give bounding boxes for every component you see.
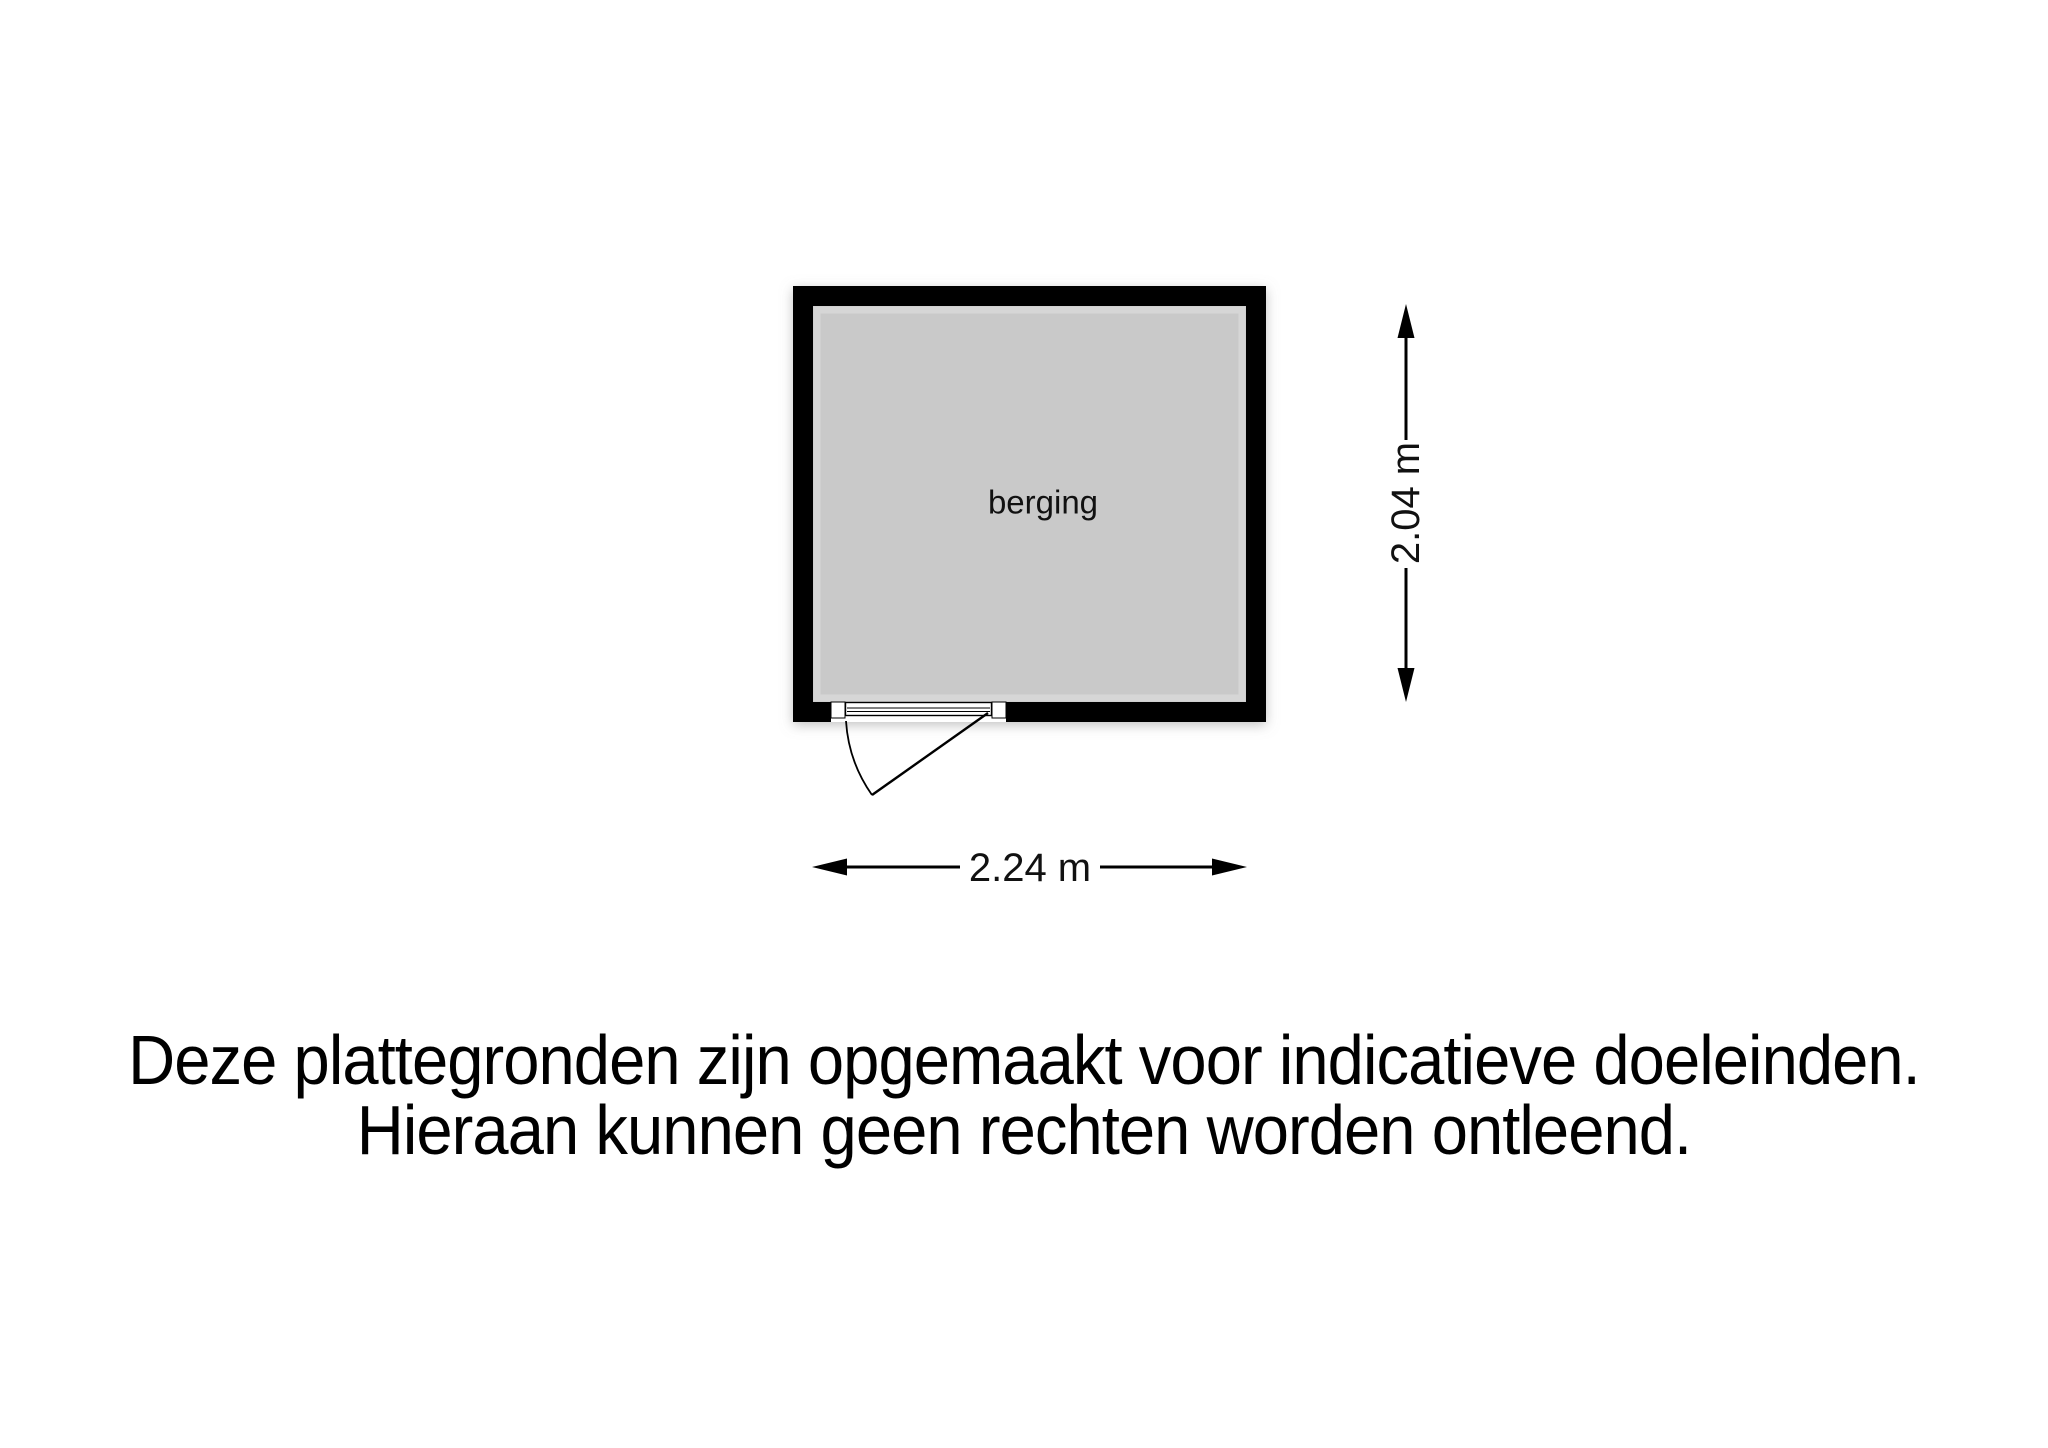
door-jamb-left [831,702,845,718]
room-label: berging [988,484,1098,521]
wall-left [793,286,813,722]
arrow-left-icon [812,859,847,876]
disclaimer-line-2: Hieraan kunnen geen rechten worden ontle… [72,1095,1977,1165]
arrow-right-icon [1212,859,1247,876]
width-dimension-label: 2.24 m [969,846,1091,890]
door-swing-arc [846,721,872,795]
door-leaf-open [872,713,988,795]
width-dimension: 2.24 m [812,846,1247,890]
arrow-down-icon [1398,668,1415,702]
wall-bottom-right-stub [1006,702,1266,722]
height-dimension: 2.04 m [1384,304,1428,702]
height-dimension-label: 2.04 m [1384,442,1428,564]
disclaimer: Deze plattegronden zijn opgemaakt voor i… [72,1025,1977,1165]
floor-plan-canvas: 2.24 m 2.04 m berging [0,0,2048,1448]
door-jamb-right [992,702,1006,718]
disclaimer-line-1: Deze plattegronden zijn opgemaakt voor i… [72,1025,1977,1095]
door-leaf-closed [846,703,992,716]
wall-bottom-left-stub [793,702,831,722]
wall-right [1246,286,1266,722]
wall-top [793,286,1266,306]
arrow-up-icon [1398,304,1415,338]
door [831,702,1006,795]
